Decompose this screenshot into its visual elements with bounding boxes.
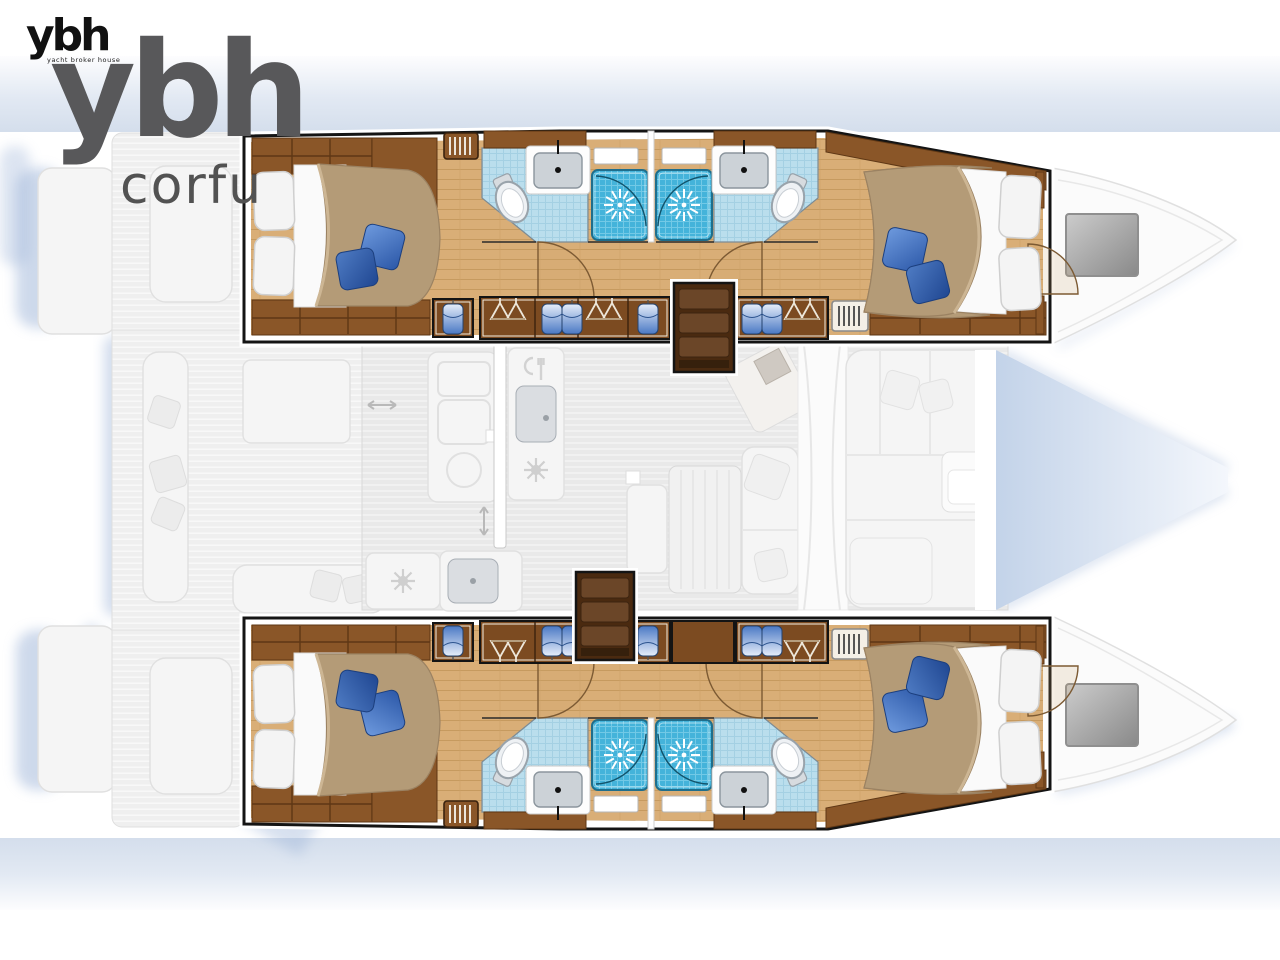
saloon-faded <box>362 340 1008 611</box>
companionway-steps-port <box>674 283 734 372</box>
walkway <box>798 345 848 610</box>
companionway-steps-starboard <box>576 572 634 660</box>
cockpit-table <box>243 360 350 443</box>
bow-hatch <box>1066 214 1138 276</box>
bow-trampoline <box>996 350 1228 610</box>
galley-sink <box>516 386 556 442</box>
bow-port <box>1052 168 1236 344</box>
corfu-label: corfu <box>120 156 263 216</box>
foredeck-edge <box>975 350 997 610</box>
appliance-icon <box>391 569 415 593</box>
bow-hatch <box>1066 684 1138 746</box>
forward-cockpit-seating <box>846 350 994 608</box>
sun-pad <box>150 658 232 794</box>
swim-platform <box>38 168 116 334</box>
bow-starboard <box>1052 616 1236 792</box>
swim-platform <box>38 626 116 792</box>
ybh-logo-watermark: ybh <box>50 22 304 161</box>
fridge-icon <box>524 458 548 482</box>
hull-cabins-starboard <box>244 618 1078 829</box>
hull-cabins-port <box>244 131 1078 342</box>
yacht-floorplan-canvas: ybh yacht broker house ybh corfu <box>0 0 1280 960</box>
background-band-bottom <box>0 838 1280 910</box>
